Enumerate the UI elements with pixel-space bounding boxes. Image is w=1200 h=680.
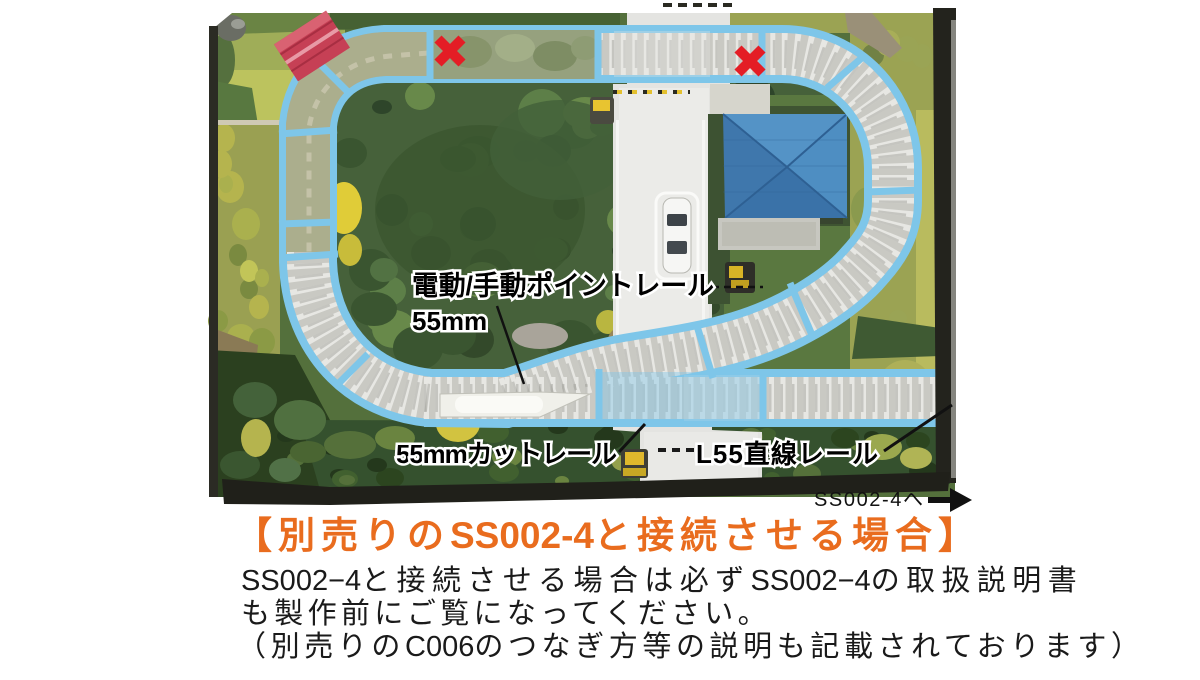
svg-text:55mm: 55mm bbox=[412, 306, 487, 336]
svg-text:【別売りのSS002-4と接続させる場合】: 【別売りのSS002-4と接続させる場合】 bbox=[235, 515, 981, 556]
svg-text:電動/手動ポイントレール: 電動/手動ポイントレール bbox=[412, 271, 714, 301]
svg-text:も製作前にご覧になってください。: も製作前にご覧になってください。 bbox=[241, 597, 771, 630]
svg-text:L55直線レール: L55直線レール bbox=[696, 439, 878, 469]
svg-text:（別売りのC006のつなぎ方等の説明も記載されております）: （別売りのC006のつなぎ方等の説明も記載されております） bbox=[237, 630, 1145, 663]
svg-text:55mmカットレール: 55mmカットレール bbox=[396, 439, 617, 469]
svg-text:SS002−4と接続させる場合は必ずSS002−4の取扱説明: SS002−4と接続させる場合は必ずSS002−4の取扱説明書 bbox=[241, 564, 1083, 597]
svg-text:SS002-4へ: SS002-4へ bbox=[814, 489, 923, 511]
